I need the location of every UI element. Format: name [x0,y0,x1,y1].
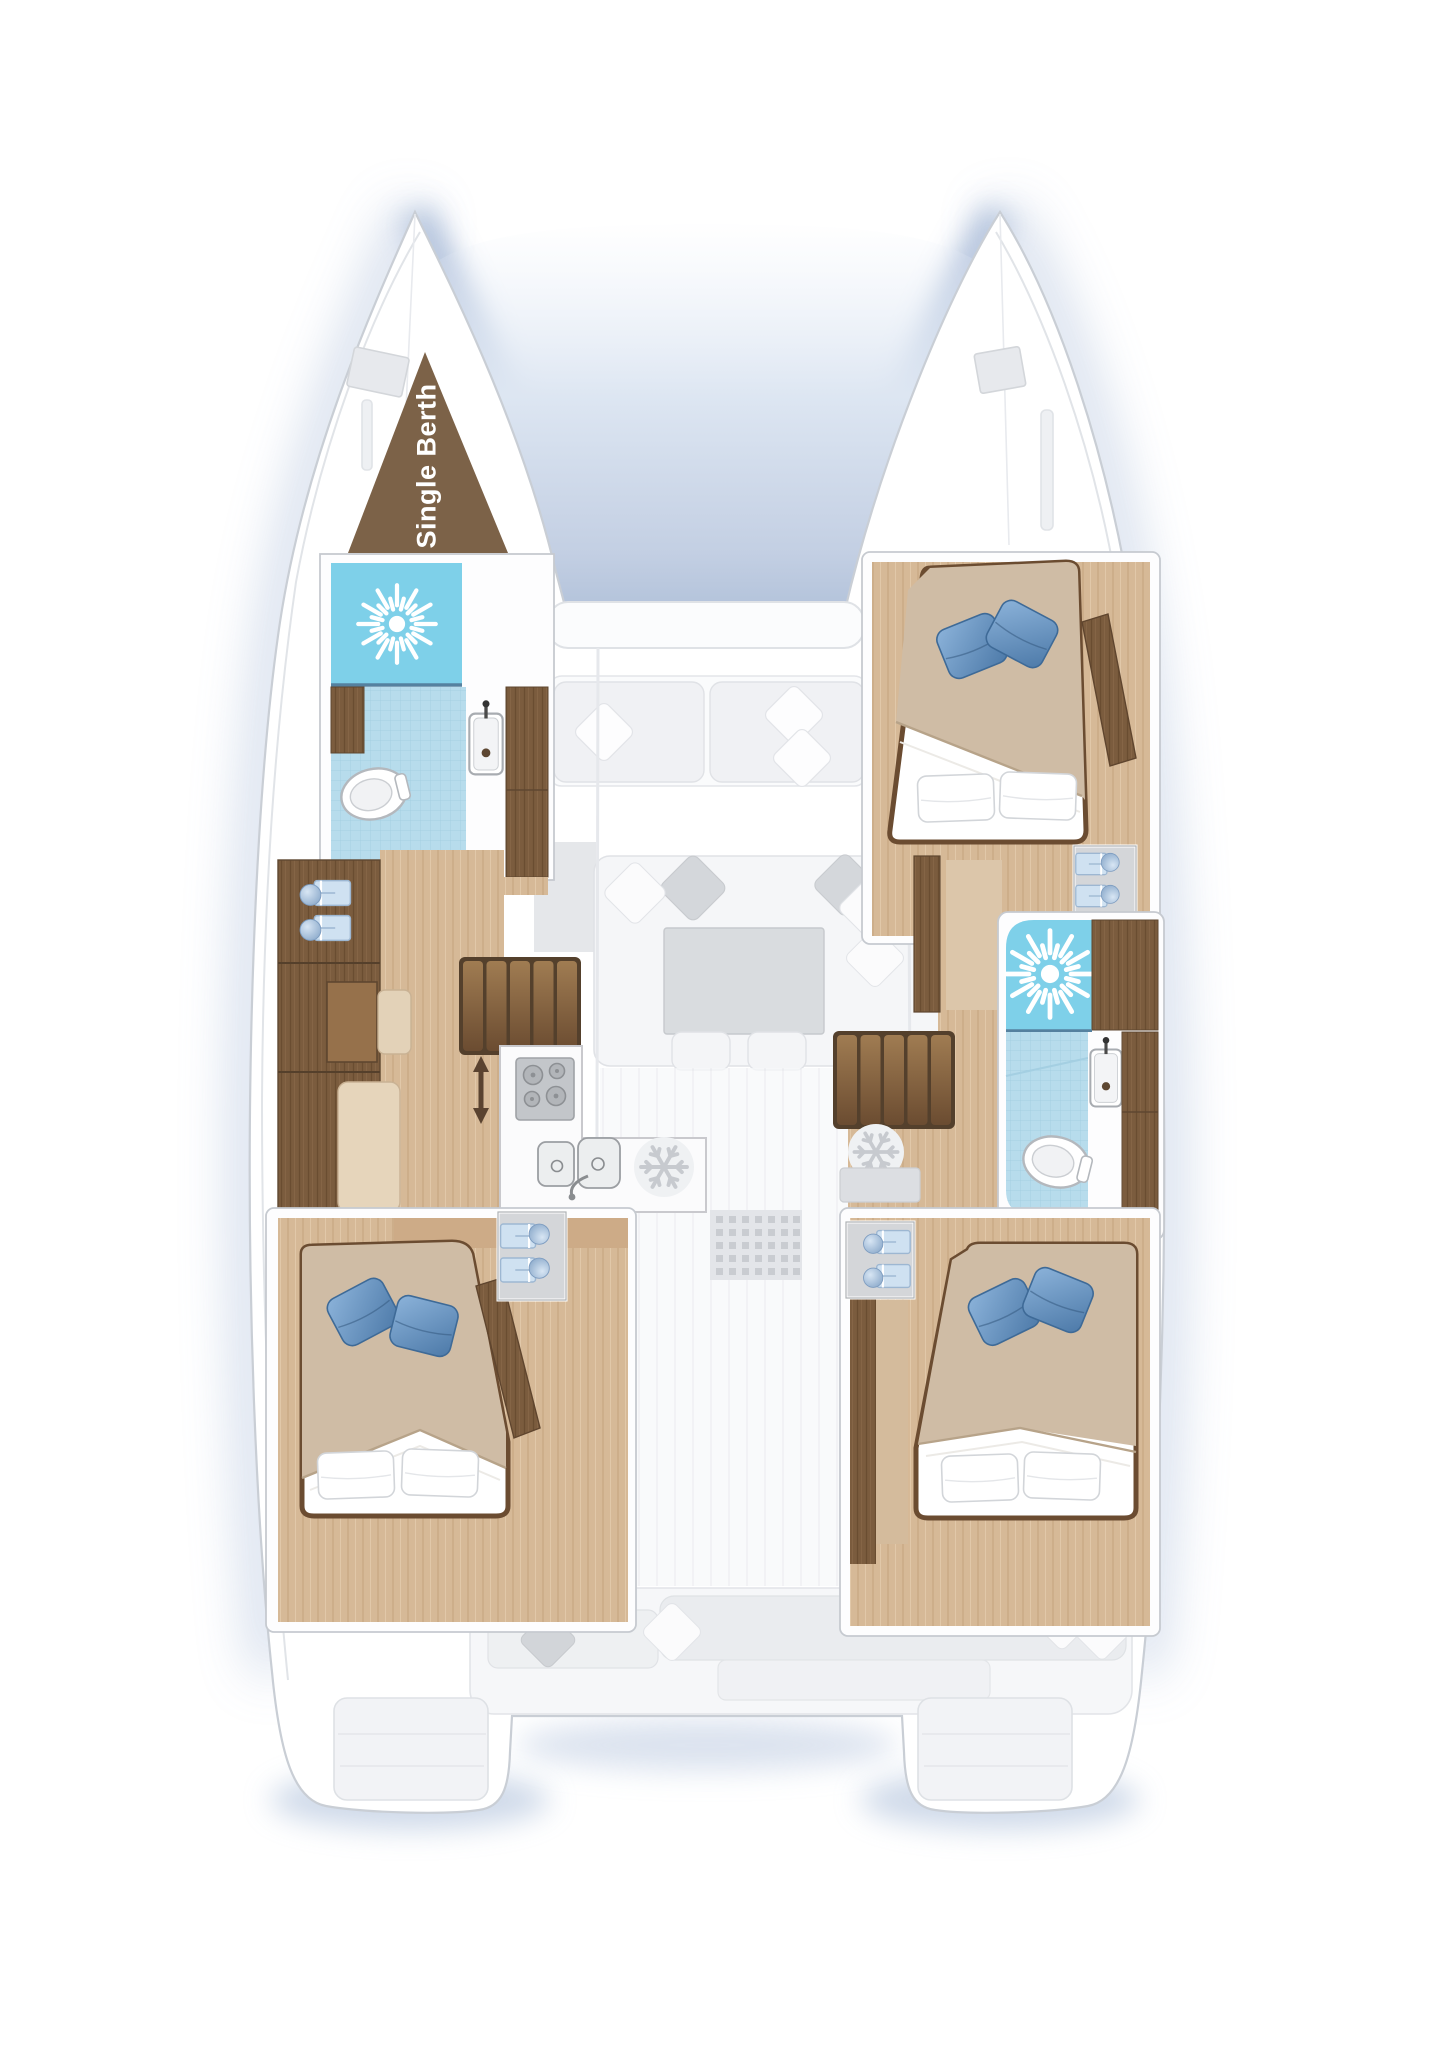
starboard-forward-cabin [862,552,1160,944]
salon-stool [672,1032,730,1070]
double-bed [302,1242,508,1516]
bathroom-cabinet [506,687,548,877]
wardrobe-door [327,982,377,1062]
stairs-icon [833,1031,955,1129]
pillow-white [941,1454,1019,1503]
cabin-entry-steps [1074,846,1136,916]
seat-cushion [378,990,411,1054]
forward-cockpit-bench [548,676,868,789]
pillow-white [1023,1452,1101,1501]
starboard-aft-cabin [840,1208,1160,1636]
cabin-entry-steps [498,1212,566,1300]
double-bed [916,1244,1136,1518]
stove-icon [516,1058,574,1120]
salon-stool [748,1032,806,1070]
bathroom-floor [1006,1032,1088,1214]
pillow-white [317,1451,395,1500]
pillow-white [999,772,1077,821]
fridge-icon [634,1137,694,1197]
cabin-entry-steps [846,1222,914,1298]
pillow-white [401,1449,479,1498]
starboard-aft-bathroom [998,912,1164,1240]
port-forward-bathroom [320,554,554,895]
forward-beam [548,602,864,648]
stairs-icon [459,957,581,1055]
bathroom-cabinet [1122,1032,1158,1214]
doormat [710,1210,802,1280]
starboard-hull-interior [833,552,1164,1636]
salon-table [664,928,824,1034]
pillow-white [917,774,995,823]
floorplan-canvas [0,0,1448,2048]
catamaran-floorplan: Single Berth [0,0,1448,2048]
bench-cushion [338,1082,400,1212]
double-bed [890,562,1086,842]
port-aft-cabin [266,1208,636,1632]
